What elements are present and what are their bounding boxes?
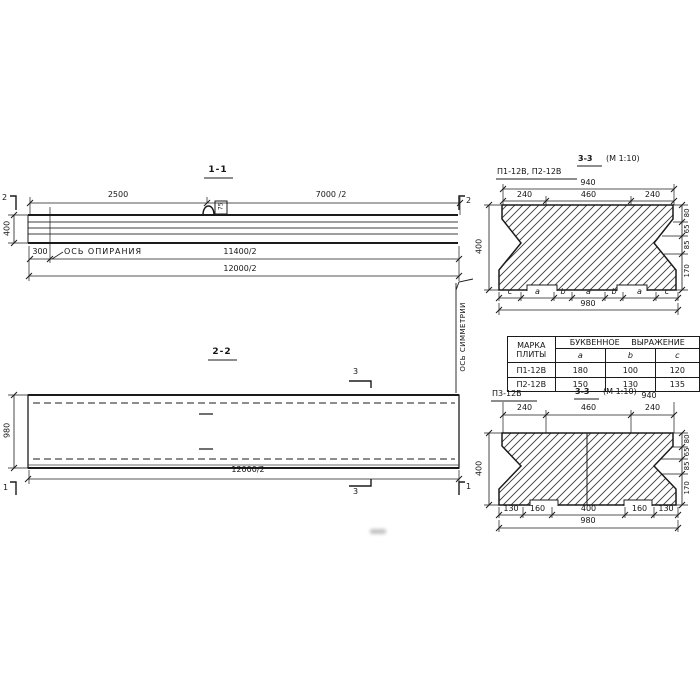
section-top-right-dim-65: 65 [684, 221, 692, 237]
elevation-cut-mark-2-left: 2 [2, 194, 7, 203]
elevation-dim-11400-half: 11400/2 [212, 248, 268, 257]
table-cell-a: 180 [555, 363, 606, 378]
table-row: П1-12В 180 100 120 [508, 363, 700, 378]
elevation-dim-7000-half: 7000 /2 [300, 191, 362, 200]
section-bottom-dim-240-right: 240 [631, 404, 674, 413]
elevation-title: 1-1 [202, 166, 234, 176]
table-expression-header: БУКВЕННОЕ ВЫРАЖЕНИЕ [555, 337, 699, 349]
section-bottom-dim-460: 460 [546, 404, 631, 413]
table-cell-c: 135 [655, 378, 699, 392]
letter-dim-c2: c [656, 288, 678, 297]
section-bottom-dim-160-1: 160 [523, 505, 552, 514]
elevation-dim-height: 400 [4, 213, 13, 243]
section-bottom-dim-160-2: 160 [625, 505, 654, 514]
section-top-dim-400: 400 [476, 231, 485, 261]
table-col-b-header: b [606, 349, 656, 363]
elevation-cut-mark-2-right: 2 [466, 197, 471, 206]
plan-cut-mark-3-bottom: 3 [353, 488, 358, 497]
section-top-scale: (М 1:10) [606, 155, 640, 164]
section-top-right-dim-170: 170 [684, 263, 692, 279]
letter-dim-c1: c [499, 288, 521, 297]
section-bottom-dim-400: 400 [476, 453, 485, 483]
section-top-right-dim-80: 80 [684, 205, 692, 221]
plate-dimension-table: МАРКА ПЛИТЫ БУКВЕННОЕ ВЫРАЖЕНИЕ a b c П1… [507, 336, 700, 392]
symmetry-axis-label: ОСЬ СИММЕТРИИ [460, 291, 468, 383]
plan-cut-mark-1-left: 1 [3, 484, 8, 493]
section-bottom-scale: (М 1:10) [603, 388, 637, 397]
elevation-dim-12000-half: 12000/2 [212, 265, 268, 274]
table-col-a-header: a [555, 349, 606, 363]
section-top-dim-240-right: 240 [631, 191, 674, 200]
letter-dim-b2: b [605, 288, 623, 297]
plan-title: 2-2 [206, 348, 238, 358]
section-bottom-dim-130-2: 130 [654, 505, 678, 514]
section-bottom-plate-label: П3-12В [492, 390, 522, 399]
section-top-dim-940: 940 [560, 179, 616, 188]
letter-dim-b1: b [554, 288, 572, 297]
section-bottom-dim-940: 940 [634, 392, 664, 401]
lifting-loop-tag: 75 [219, 195, 226, 217]
plan-2-2-linework [8, 381, 465, 495]
section-bottom-dim-400-mid: 400 [552, 505, 625, 514]
plan-dim-12000-half: 12000/2 [218, 466, 278, 475]
plan-dim-width: 980 [4, 415, 13, 445]
plan-cut-mark-3-top: 3 [353, 368, 358, 377]
letter-dim-a1: a [521, 288, 554, 297]
elevation-dim-300: 300 [29, 248, 51, 257]
section-top-title: 3-3 [578, 155, 592, 164]
section-top-right-dim-85: 85 [684, 237, 692, 253]
technical-drawing-sheet: 1-1 2500 7000 /2 2 2 400 75 300 ОСЬ ОПИР… [0, 0, 700, 700]
section-bottom-dim-240-left: 240 [503, 404, 546, 413]
section-top-dim-240-left: 240 [503, 191, 546, 200]
table-cell-b: 100 [606, 363, 656, 378]
section-bottom-dim-980: 980 [558, 517, 618, 526]
section-bottom-dim-130-1: 130 [499, 505, 523, 514]
print-artifact [370, 529, 386, 534]
letter-dim-a3: a [623, 288, 656, 297]
section-top-plate-label: П1-12В, П2-12В [497, 168, 561, 177]
section-bottom-right-dim-170: 170 [684, 480, 692, 496]
bearing-axis-label: ОСЬ ОПИРАНИЯ [64, 248, 142, 257]
table-cell-mark: П1-12В [508, 363, 556, 378]
section-bottom-right-dim-85: 85 [684, 458, 692, 474]
plan-cut-mark-1-right: 1 [466, 483, 471, 492]
elevation-dim-2500: 2500 [88, 191, 148, 200]
section-bottom-title: 3-3 [575, 388, 589, 397]
table-cell-c: 120 [655, 363, 699, 378]
section-top-dim-980: 980 [558, 300, 618, 309]
section-top-dim-460: 460 [546, 191, 631, 200]
letter-dim-a2: a [572, 288, 605, 297]
table-col-c-header: c [655, 349, 699, 363]
table-col-mark-header: МАРКА ПЛИТЫ [508, 337, 556, 363]
